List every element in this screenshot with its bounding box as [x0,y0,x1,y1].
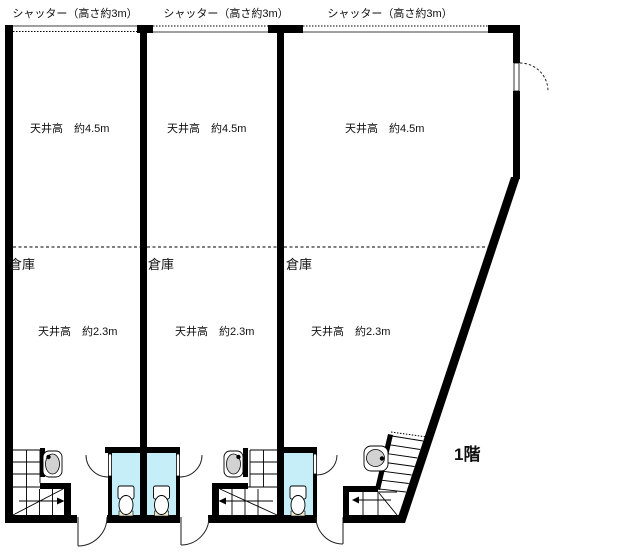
door-swing-arc [86,455,108,477]
room-label-2: 倉庫 [148,257,174,272]
ceiling-height-upper-1: 天井高 約4.5m [30,121,109,135]
toilet-icon [118,486,134,516]
stair-enclosure-3-wall [343,486,378,492]
bottom-wall-segment [343,515,404,523]
door-swing-arc [316,517,343,544]
top-wall-segment [268,25,303,33]
door-swing-arc [317,455,337,475]
bottom-wall-segment [107,515,180,523]
sink-icon [224,451,243,477]
floor-title: 1階 [454,445,480,464]
outer-walls [5,25,520,523]
door-swing-arc [180,455,202,477]
ceiling-height-lower-1: 天井高 約2.3m [38,324,117,338]
stair-enclosure-1-wall [64,489,71,517]
labels: シャッター（高さ約3m） シャッター（高さ約3m） シャッター（高さ約3m） 天… [9,6,480,464]
toilet-room-3-top-wall [280,447,317,453]
toilet-icon [154,486,170,516]
toilet-room-1-side-wall [108,476,112,517]
floor-plan-drawing: シャッター（高さ約3m） シャッター（高さ約3m） シャッター（高さ約3m） 天… [0,0,640,558]
interior-walls [40,434,393,517]
door-leaf [177,454,180,476]
stair-direction-arrow [352,497,391,504]
slanted-right-wall [396,177,520,523]
sink-icon [43,451,62,477]
door-leaf [514,63,519,91]
toilet-room-3-side-wall [313,473,317,517]
right-wall-mid [513,91,520,179]
shutter-label-3: シャッター（高さ約3m） [327,6,452,20]
door-swing-arc [181,517,209,545]
stair-enclosure-2-wall [212,483,248,489]
toilet-room-1-top-wall [105,447,143,453]
stair-enclosure-2-wall [212,489,219,517]
ceiling-height-upper-2: 天井高 約4.5m [167,121,246,135]
room-label-3: 倉庫 [286,257,312,272]
door-leaf [109,454,112,476]
floor-plan-page: シャッター（高さ約3m） シャッター（高さ約3m） シャッター（高さ約3m） 天… [0,0,640,558]
stair-enclosure-3-wall [343,492,349,517]
ceiling-height-upper-3: 天井高 約4.5m [345,121,424,135]
right-wall-upper [513,25,520,63]
shutter-label-2: シャッター（高さ約3m） [163,6,288,20]
left-wall [5,25,13,523]
door-swing-arc [78,517,107,546]
toilet-icon [290,486,306,516]
shutter-label-1: シャッター（高さ約3m） [12,6,137,20]
door-swing-arc [520,63,548,91]
sink-partition-2 [243,448,248,477]
toilet-room-2-top-wall [143,447,180,453]
room-label-1: 倉庫 [9,257,35,272]
stair-enclosure-1-wall [40,483,71,489]
toilet-room-2-side-wall [176,476,180,517]
stair-direction-arrow [219,498,274,505]
ceiling-height-lower-3: 天井高 約2.3m [311,324,390,338]
stair-direction-arrow [19,498,65,505]
door-leaf [314,454,317,474]
top-wall-segment [137,25,153,33]
ceiling-height-lower-2: 天井高 約2.3m [175,324,254,338]
shutter-openings [13,26,488,32]
sink-icon [364,446,388,471]
